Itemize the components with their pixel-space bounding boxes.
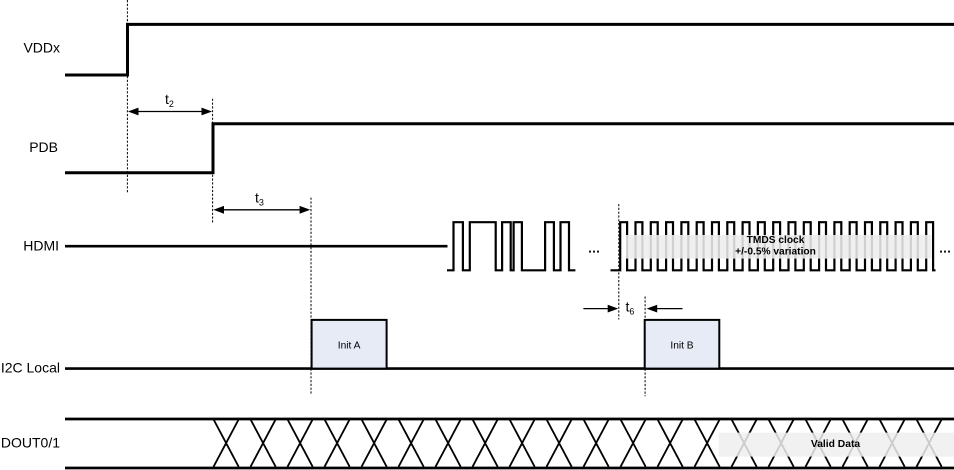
svg-text:Valid Data: Valid Data xyxy=(811,439,860,450)
svg-text:HDMI: HDMI xyxy=(23,237,59,253)
svg-text:DOUT0/1: DOUT0/1 xyxy=(1,435,60,451)
svg-text:+/-0.5% variation: +/-0.5% variation xyxy=(735,246,816,257)
svg-text:I2C Local: I2C Local xyxy=(1,359,60,375)
svg-text:Init B: Init B xyxy=(670,340,693,351)
svg-text:VDDx: VDDx xyxy=(23,39,60,55)
svg-text:TMDS clock: TMDS clock xyxy=(747,235,805,246)
svg-text:PDB: PDB xyxy=(29,139,58,155)
svg-text:Init A: Init A xyxy=(338,340,361,351)
